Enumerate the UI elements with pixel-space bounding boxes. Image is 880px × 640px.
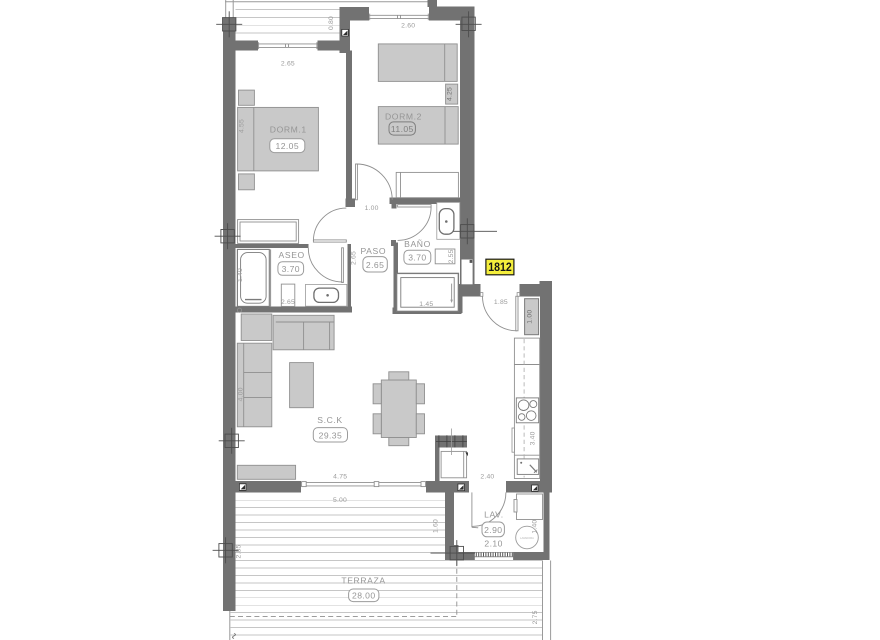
svg-text:TERRAZA: TERRAZA	[341, 576, 385, 586]
svg-text:PASO: PASO	[360, 246, 386, 256]
svg-text:4.55: 4.55	[239, 119, 246, 133]
svg-text:2.85: 2.85	[236, 544, 243, 558]
svg-text:1.40: 1.40	[237, 268, 244, 282]
svg-text:DORM.1: DORM.1	[270, 125, 307, 135]
svg-text:12.05: 12.05	[276, 141, 300, 151]
svg-text:4.25: 4.25	[447, 87, 454, 101]
svg-text:2.55: 2.55	[448, 249, 455, 263]
svg-text:1.40: 1.40	[532, 520, 539, 534]
svg-text:2.40: 2.40	[480, 473, 494, 480]
svg-text:2.65: 2.65	[350, 251, 357, 265]
svg-text:2.65: 2.65	[281, 299, 295, 306]
svg-text:1.45: 1.45	[419, 301, 433, 308]
svg-text:1.85: 1.85	[494, 299, 508, 306]
svg-text:2.65: 2.65	[366, 260, 384, 270]
svg-text:DORM.2: DORM.2	[385, 112, 422, 122]
svg-text:S.C.K: S.C.K	[317, 415, 342, 425]
svg-text:2.10: 2.10	[484, 538, 502, 548]
svg-text:2.65: 2.65	[281, 61, 295, 68]
svg-text:3.70: 3.70	[408, 253, 426, 263]
svg-text:1.00: 1.00	[527, 310, 534, 324]
svg-text:1.00: 1.00	[365, 205, 379, 212]
svg-text:LAV.: LAV.	[484, 510, 504, 520]
svg-text:ASEO: ASEO	[279, 250, 305, 260]
svg-text:3.40: 3.40	[529, 431, 536, 445]
svg-text:1.60: 1.60	[432, 519, 439, 533]
svg-text:4.75: 4.75	[333, 474, 347, 481]
svg-text:28.00: 28.00	[352, 591, 376, 601]
svg-text:BAÑO: BAÑO	[404, 239, 431, 249]
svg-text:2.75: 2.75	[532, 610, 539, 624]
svg-text:0.80: 0.80	[328, 16, 335, 30]
svg-text:11.05: 11.05	[391, 124, 414, 134]
svg-text:29.35: 29.35	[319, 430, 343, 440]
svg-text:3.70: 3.70	[282, 264, 300, 274]
svg-text:5.00: 5.00	[333, 497, 347, 504]
svg-text:2.60: 2.60	[401, 22, 415, 29]
svg-text:LAVADORA: LAVADORA	[520, 536, 534, 540]
svg-text:1812: 1812	[488, 262, 512, 274]
svg-text:2.90: 2.90	[484, 525, 502, 535]
svg-text:4.00: 4.00	[238, 387, 245, 401]
